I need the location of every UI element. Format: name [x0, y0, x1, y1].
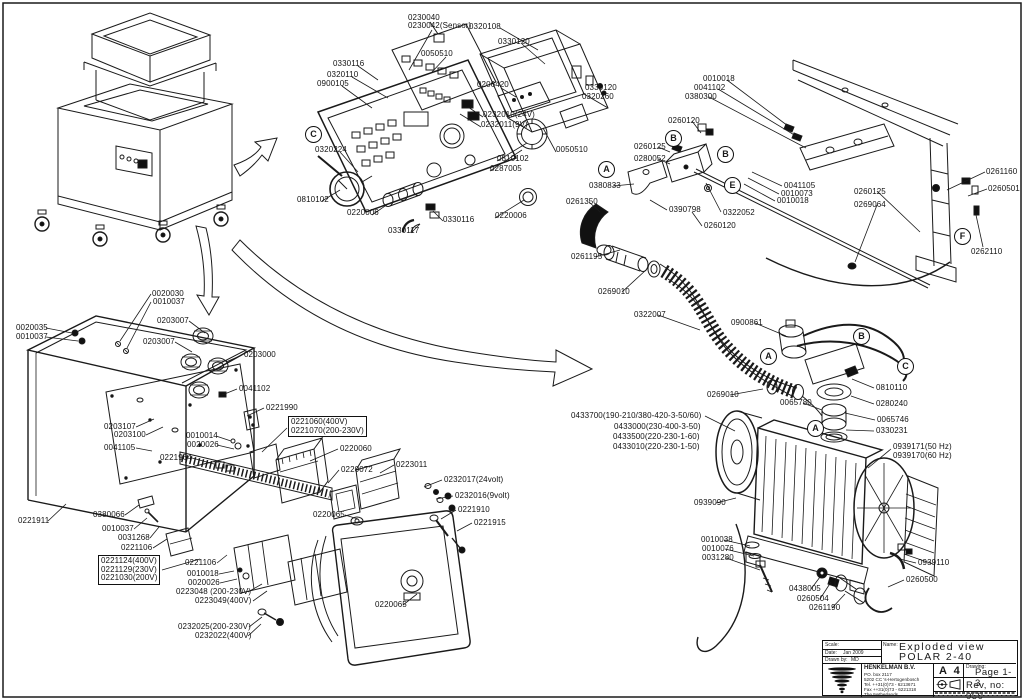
part-label: 0223011: [396, 461, 427, 470]
part-label: 0810110: [876, 384, 907, 393]
henkelman-logo: [825, 665, 859, 695]
part-label: 0330116: [333, 60, 364, 69]
view-marker-a: A: [760, 348, 777, 365]
part-label: 0203007: [157, 317, 189, 326]
part-label: 0438005: [789, 585, 821, 594]
view-marker-b: B: [665, 130, 682, 147]
part-label: 0232016(9volt): [455, 492, 510, 501]
part-label: 0221910: [458, 506, 490, 515]
projection-symbol-icon: [936, 679, 962, 690]
part-label: 0010037: [16, 333, 48, 342]
part-label: 0220006: [347, 209, 379, 218]
part-label-group: 0221124(400V)0221129(230V)0221030(200V): [98, 555, 160, 585]
view-marker-c: C: [305, 126, 322, 143]
view-marker-b: B: [853, 328, 870, 345]
view-marker-c: C: [897, 358, 914, 375]
part-label: 0041105: [104, 444, 135, 453]
part-label: 0810102: [297, 196, 329, 205]
part-label: 0221070(200-230V): [291, 427, 364, 436]
part-label-group: 0221060(400V)0221070(200-230V): [288, 416, 367, 437]
title-block: Scale: Date: Jan 2009 Drawn by: MD Name:…: [822, 640, 1018, 696]
part-label: 0260125: [634, 143, 666, 152]
drawn-by-label: Drawn by:: [825, 657, 848, 663]
date-label: Date:: [825, 650, 837, 656]
part-label: 0220006: [495, 212, 527, 221]
part-label: 0260120: [668, 117, 700, 126]
part-label: 0433700(190-210/380-420-3-50/60): [571, 412, 701, 421]
part-label: 0900105: [317, 80, 349, 89]
part-label: 0010018: [777, 197, 809, 206]
part-label: 0261350: [566, 198, 598, 207]
paper-size: A 4: [939, 665, 962, 677]
name-label: Name:: [883, 642, 898, 648]
part-label: 0330120: [498, 38, 530, 47]
part-label: 0031268: [118, 534, 150, 543]
part-label: 0261190: [809, 604, 840, 613]
drawing-sheet: 02300400230042(Sensor)032010803301200050…: [0, 0, 1024, 700]
part-label: 0203007: [143, 338, 175, 347]
part-label: 0220065: [375, 601, 407, 610]
revision-number: Rev, no: 050: [966, 680, 1017, 700]
view-marker-e: E: [724, 177, 741, 194]
part-label: 0221106: [121, 544, 152, 553]
part-label: 0221911: [18, 517, 49, 526]
part-labels-layer: 02300400230042(Sensor)032010803301200050…: [0, 0, 1024, 700]
part-label: 0380066: [93, 511, 125, 520]
part-label: 0232011(9V): [481, 121, 528, 130]
part-label: 0280052: [634, 155, 666, 164]
part-label: 0380300: [685, 93, 717, 102]
company-country: The Netherlands: [864, 692, 898, 697]
part-label: 0260501: [988, 185, 1020, 194]
part-label: 0320108: [469, 23, 501, 32]
part-label: 0287005: [490, 165, 522, 174]
part-label: 0203100: [114, 431, 146, 440]
part-label: 0221990: [266, 404, 298, 413]
part-label: 0433500(220-230-1-60): [613, 433, 700, 442]
part-label: 0031280: [702, 554, 734, 563]
part-label: 0020026: [187, 441, 219, 450]
scale-label: Scale:: [825, 642, 839, 648]
part-label: 0223049(400V): [195, 597, 251, 606]
part-label: 0261160: [986, 168, 1017, 177]
part-label: 0065780: [780, 399, 812, 408]
part-label: 0322052: [723, 209, 755, 218]
company-name: HENKELMAN B.V.: [864, 665, 915, 672]
part-label: 0261195: [571, 253, 602, 262]
part-label: 0221106: [185, 559, 216, 568]
view-marker-a: A: [598, 161, 615, 178]
part-label: 0221030(200V): [101, 574, 157, 583]
part-label: 0322007: [634, 311, 666, 320]
part-label: 0330116: [443, 216, 474, 225]
part-label: 0260120: [704, 222, 736, 231]
part-label: 0260125: [854, 188, 886, 197]
part-label: 0050510: [421, 50, 453, 59]
part-label: 0939090: [694, 499, 726, 508]
part-label: 0232017(24volt): [444, 476, 503, 485]
part-label: 0206420: [477, 81, 509, 90]
part-label: 0041102: [239, 385, 270, 394]
date-value: Jan 2009: [843, 650, 864, 656]
drawing-subtitle: POLAR 2-40: [899, 652, 973, 663]
part-label: 0280240: [876, 400, 908, 409]
fineprint-line: [935, 695, 1015, 697]
fineprint-line: [935, 692, 1015, 694]
part-label: 0262110: [971, 248, 1002, 257]
part-label: 0220065: [313, 511, 345, 520]
part-label: 0433010(220-230-1-50): [613, 443, 700, 452]
part-label: 0330231: [876, 427, 908, 436]
part-label: 0010037: [153, 298, 185, 307]
drawn-by-value: MD: [851, 657, 859, 663]
part-label: 0050510: [556, 146, 588, 155]
part-label: 0269064: [854, 201, 886, 210]
part-label: 0320260: [582, 93, 614, 102]
part-label: 0810102: [497, 155, 529, 164]
part-label: 0232010(24V): [483, 111, 535, 120]
part-label: 0220072: [341, 466, 373, 475]
part-label: 0900861: [731, 319, 763, 328]
part-label: 0203000: [244, 351, 276, 360]
part-label: 0939170(60 Hz): [893, 452, 952, 461]
view-marker-a: A: [807, 420, 824, 437]
part-label: 0390798: [669, 206, 701, 215]
part-label: 0269010: [707, 391, 739, 400]
part-label: 0269010: [598, 288, 630, 297]
part-label: 0433000(230-400-3-50): [614, 423, 701, 432]
part-label: 0065746: [877, 416, 909, 425]
part-label: 0330117: [388, 227, 419, 236]
part-label: 0260500: [906, 576, 938, 585]
part-label: 0380833: [589, 182, 621, 191]
part-label: 0221964: [160, 454, 192, 463]
part-label: 0230042(Sensor): [408, 22, 471, 31]
view-marker-f: F: [954, 228, 971, 245]
view-marker-b: B: [717, 146, 734, 163]
part-label: 0939110: [918, 559, 949, 568]
part-label: 0220060: [340, 445, 372, 454]
part-label: 0232022(400V): [195, 632, 251, 641]
part-label: 0221915: [474, 519, 506, 528]
part-label: 0320224: [315, 146, 347, 155]
